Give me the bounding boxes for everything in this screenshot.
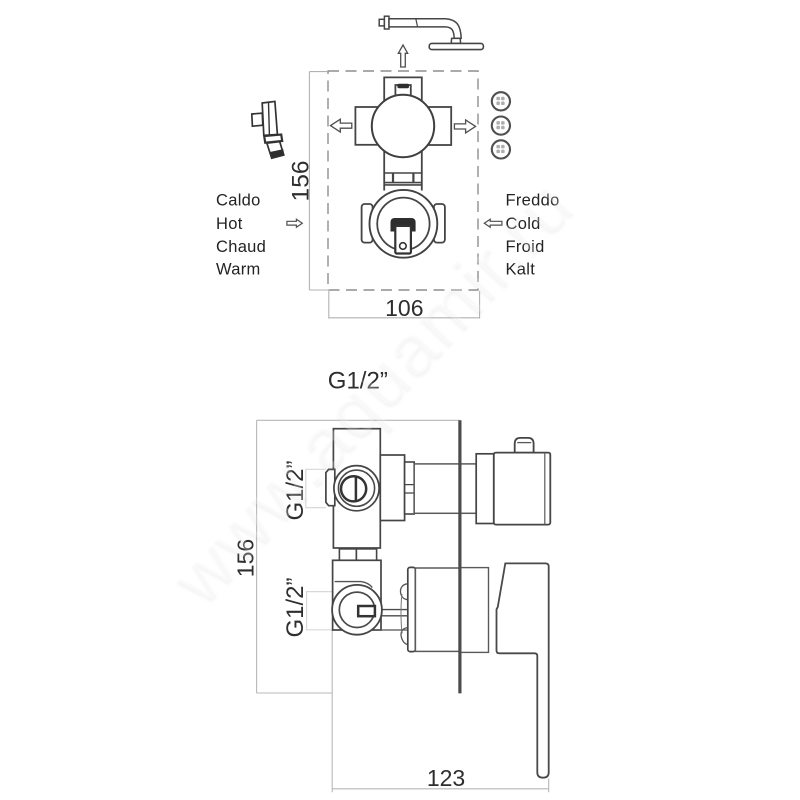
svg-text:G1/2”: G1/2” — [282, 577, 309, 637]
svg-text:123: 123 — [427, 765, 465, 791]
svg-text:Hot: Hot — [216, 215, 243, 233]
svg-text:Warm: Warm — [216, 261, 261, 279]
svg-text:156: 156 — [288, 161, 315, 202]
svg-text:Caldo: Caldo — [216, 192, 261, 210]
svg-text:Chaud: Chaud — [216, 238, 266, 256]
